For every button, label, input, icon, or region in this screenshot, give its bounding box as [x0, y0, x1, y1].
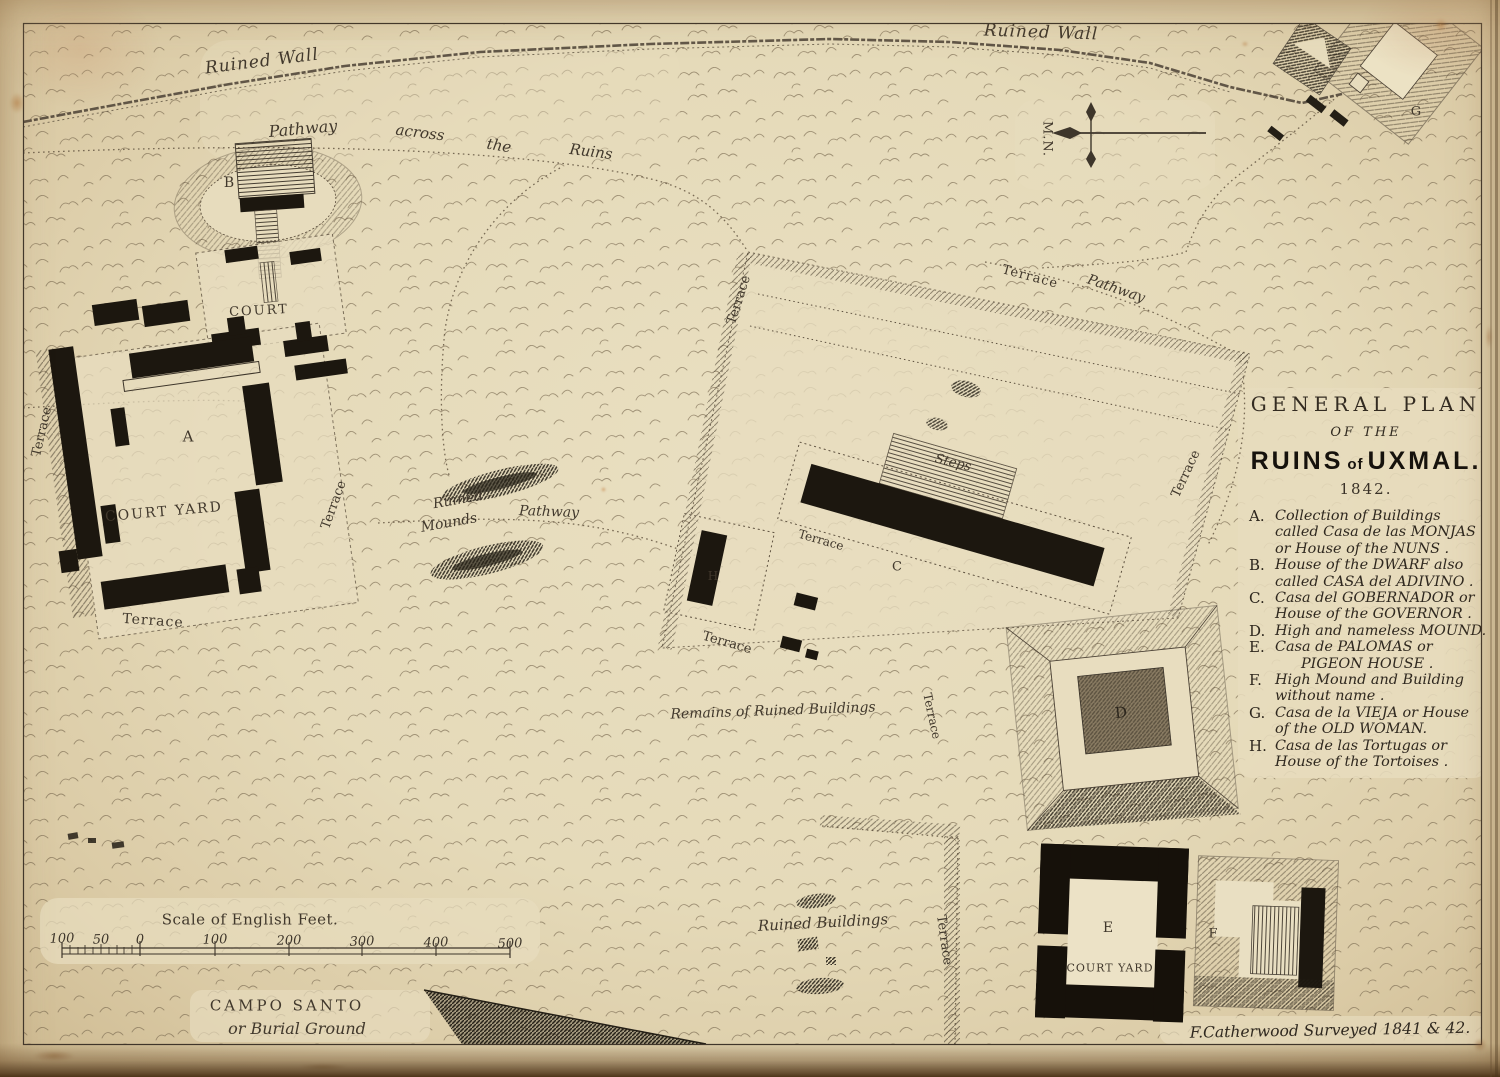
legend-line: Casa de PALOMAS or: [1275, 639, 1494, 655]
label-burial-ground: or Burial Ground: [228, 1021, 366, 1037]
legend-key-h: H.: [1249, 738, 1267, 754]
label-ruined-wall-right: Ruined Wall: [983, 23, 1098, 44]
map-year: 1842.: [1238, 480, 1494, 498]
legend-line: High and nameless MOUND.: [1275, 623, 1494, 639]
legend-key-b: B.: [1249, 557, 1265, 573]
legend-entry-b: B. House of the DWARF also called CASA d…: [1238, 557, 1494, 590]
legend-entry-g: G. Casa de la VIEJA or House of the OLD …: [1238, 705, 1494, 738]
label-terrace-a-bottom: Terrace: [122, 612, 184, 630]
scale-tick-100: 100: [202, 932, 227, 948]
legend: A. Collection of Buildings called Casa d…: [1238, 508, 1494, 771]
label-letter-f: F: [1208, 928, 1217, 941]
label-the: the: [486, 137, 513, 156]
legend-key-c: C.: [1249, 590, 1265, 606]
title-uxmal: UXMAL.: [1368, 447, 1482, 475]
legend-key-g: G.: [1249, 705, 1265, 721]
scale-tick-0: 0: [136, 932, 145, 947]
legend-line: called Casa de las MONJAS: [1275, 524, 1494, 540]
legend-key-f: F.: [1249, 672, 1262, 688]
title-ruins: RUINS: [1251, 447, 1344, 475]
compass-label: M.N.: [1041, 121, 1054, 157]
map-sheet: Ruined Wall Ruined Wall Pathway across t…: [0, 0, 1500, 1077]
scale-bar-title: Scale of English Feet.: [162, 913, 338, 928]
label-letter-g: G: [1411, 106, 1421, 119]
label-pathway-mid: Pathway: [519, 504, 579, 520]
legend-line: Collection of Buildings: [1275, 508, 1494, 524]
legend-line: Casa de las Tortugas or: [1275, 738, 1494, 754]
legend-line: House of the GOVERNOR .: [1275, 606, 1494, 622]
label-letter-e: E: [1103, 921, 1113, 935]
legend-line: High Mound and Building: [1275, 672, 1494, 688]
label-court-a: COURT: [229, 303, 289, 319]
legend-key-e: E.: [1249, 639, 1265, 655]
map-title-ruins-uxmal: RUINSofUXMAL.: [1238, 447, 1494, 476]
scale-tick-500: 500: [497, 936, 522, 952]
label-letter-a: A: [183, 430, 194, 445]
legend-line: House of the Tortoises .: [1275, 754, 1494, 770]
scale-tick-50: 50: [92, 932, 109, 948]
label-letter-b: B: [224, 176, 234, 190]
scale-tick-200: 200: [276, 933, 301, 949]
legend-entry-f: F. High Mound and Building without name …: [1238, 672, 1494, 705]
legend-entry-h: H. Casa de las Tortugas or House of the …: [1238, 738, 1494, 771]
map-title-ofthe: OF THE: [1238, 425, 1494, 440]
legend-line: called CASA del ADIVINO .: [1275, 574, 1494, 590]
scale-tick-400: 400: [423, 935, 448, 951]
label-letter-c: C: [892, 561, 902, 574]
scale-tick-300: 300: [349, 934, 374, 950]
legend-entry-d: D. High and nameless MOUND.: [1238, 623, 1494, 639]
legend-line: of the OLD WOMAN.: [1275, 721, 1494, 737]
legend-line: Casa de la VIEJA or House: [1275, 705, 1494, 721]
legend-entry-c: C. Casa del GOBERNADOR or House of the G…: [1238, 590, 1494, 623]
title-of: of: [1343, 456, 1367, 473]
label-letter-h: H: [708, 570, 718, 582]
legend-line: without name .: [1275, 688, 1494, 704]
label-campo-santo: CAMPO SANTO: [210, 999, 364, 1014]
label-letter-d: D: [1114, 705, 1128, 721]
legend-key-d: D.: [1249, 623, 1265, 639]
map-title: GENERAL PLAN: [1238, 392, 1494, 416]
label-court-yard-e: COURT YARD: [1066, 963, 1153, 974]
title-block: GENERAL PLAN OF THE RUINSofUXMAL. 1842. …: [1238, 392, 1494, 771]
legend-key-a: A.: [1249, 508, 1265, 524]
legend-entry-a: A. Collection of Buildings called Casa d…: [1238, 508, 1494, 557]
legend-entry-e: E. Casa de PALOMAS or PIGEON HOUSE .: [1238, 639, 1494, 672]
legend-line: or House of the NUNS .: [1275, 541, 1494, 557]
legend-line: Casa del GOBERNADOR or: [1275, 590, 1494, 606]
legend-line: House of the DWARF also: [1275, 557, 1494, 573]
legend-line: PIGEON HOUSE .: [1275, 656, 1494, 672]
scale-tick-100L: 100: [49, 931, 74, 947]
